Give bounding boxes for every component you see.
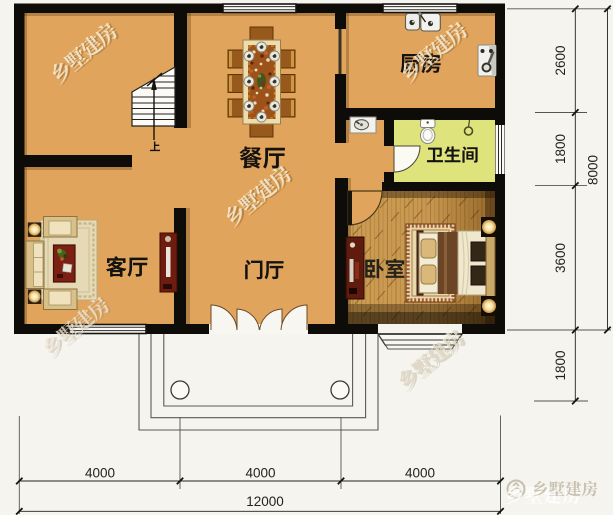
svg-text:1800: 1800 xyxy=(553,134,568,164)
svg-text:12000: 12000 xyxy=(246,494,284,509)
svg-text:3600: 3600 xyxy=(553,243,568,273)
svg-text:4000: 4000 xyxy=(245,466,275,481)
svg-text:4000: 4000 xyxy=(405,466,435,481)
svg-text:2600: 2600 xyxy=(553,45,568,75)
svg-text:4000: 4000 xyxy=(85,466,115,481)
svg-text:8000: 8000 xyxy=(586,155,601,185)
svg-text:1800: 1800 xyxy=(553,350,568,380)
